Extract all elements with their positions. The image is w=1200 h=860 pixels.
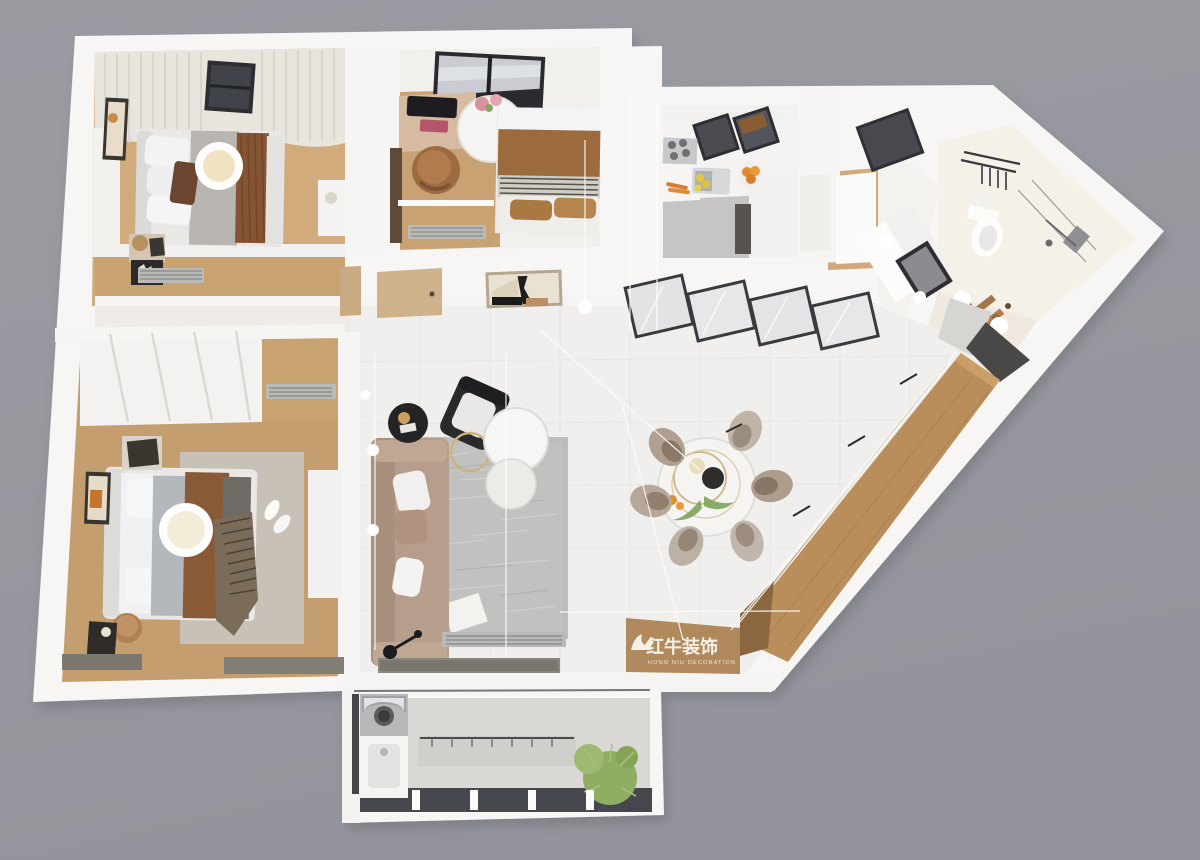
svg-text:HONG NIU DECORATION: HONG NIU DECORATION [648,660,736,666]
svg-text:红牛装饰: 红牛装饰 [646,636,718,657]
